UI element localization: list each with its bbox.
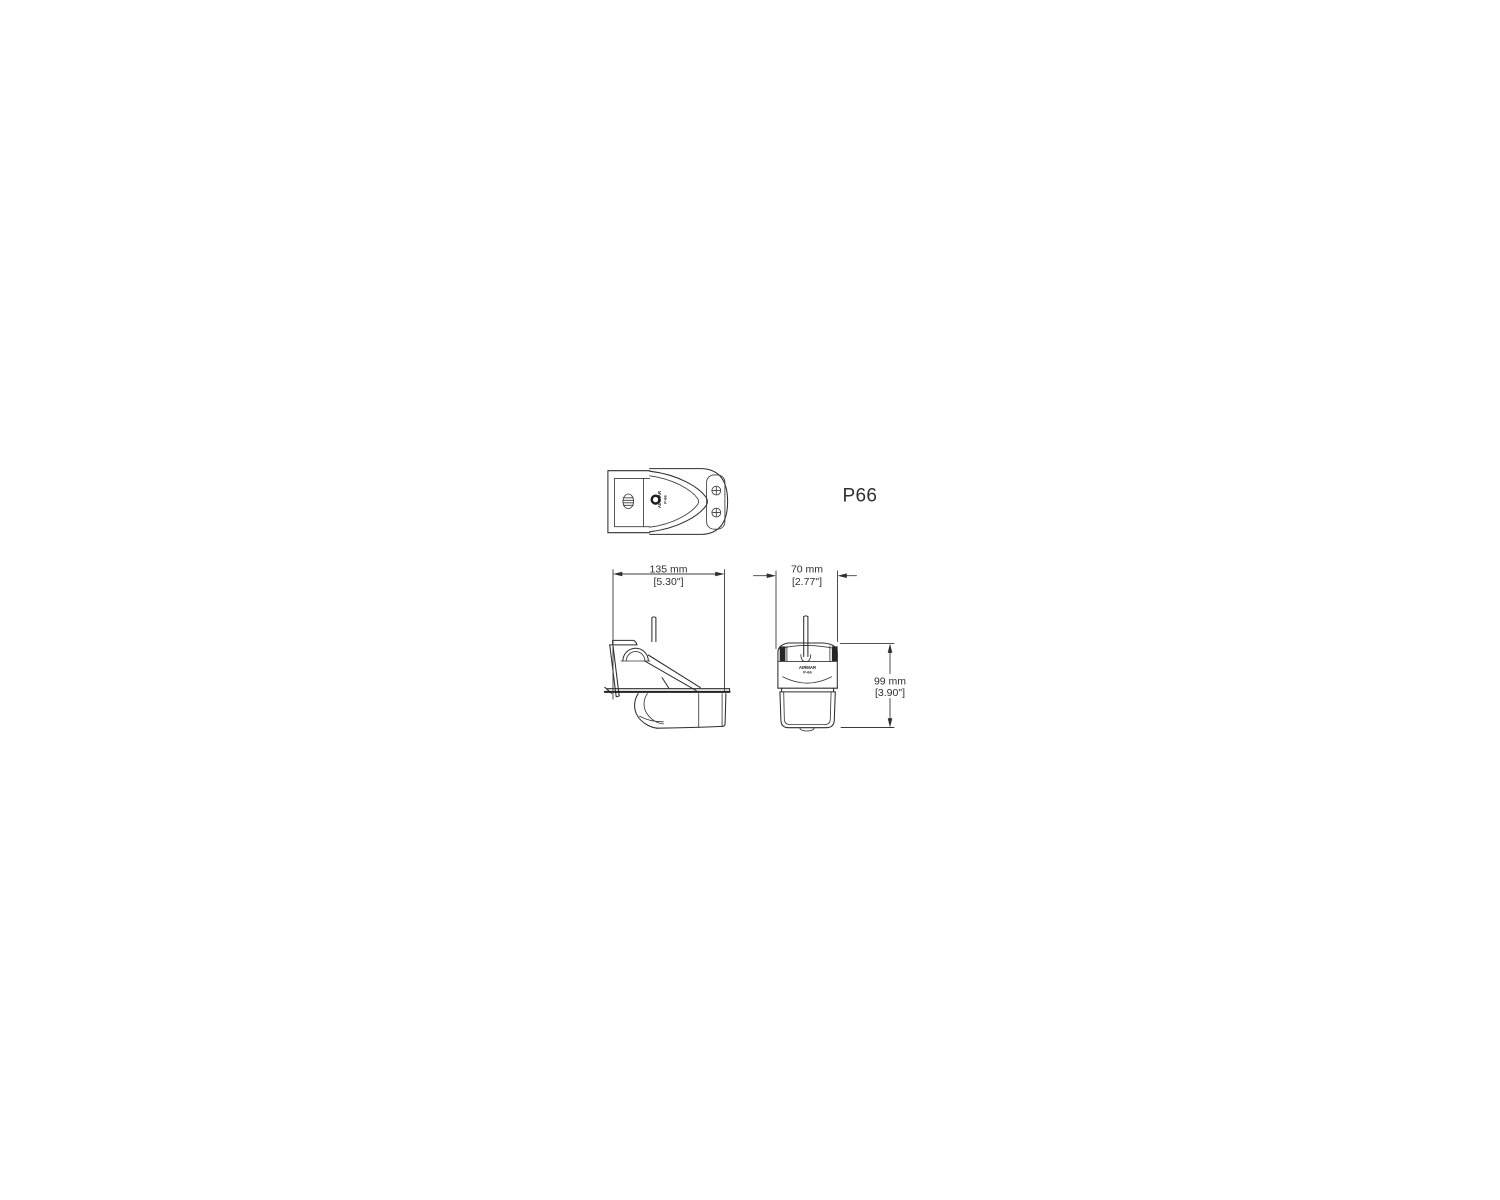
- drawing-page: AIRMAR P-66: [0, 0, 1500, 1200]
- front-view: AIRMAR P-66: [778, 616, 838, 731]
- arrow-down-icon: [888, 718, 893, 727]
- mounting-plate: [605, 687, 730, 693]
- model-label: P-66: [803, 669, 812, 674]
- arrow-left-icon: [613, 572, 622, 577]
- phillips-screw-icon: [712, 486, 721, 495]
- front-lower-housing: [780, 692, 835, 728]
- dim-height-imperial: [3.90"]: [875, 687, 905, 699]
- extension-lines: [613, 570, 725, 699]
- ratchet-block-icon: [832, 646, 838, 661]
- arrow-up-icon: [888, 644, 893, 653]
- top-view: AIRMAR P-66: [608, 469, 728, 535]
- dim-depth-imperial: [2.77"]: [792, 576, 822, 588]
- dim-width-imperial: [5.30"]: [654, 576, 684, 588]
- part-number-label: P66: [843, 486, 878, 507]
- ratchet-knob-icon: [623, 494, 634, 509]
- dimension-width: 135 mm [5.30"]: [613, 563, 725, 699]
- dimension-depth: 70 mm [2.77"]: [754, 563, 857, 648]
- dim-height-metric: 99 mm: [874, 676, 906, 688]
- brand-label: AIRMAR: [657, 490, 662, 508]
- stem-arm: [645, 655, 701, 691]
- bracket-cap: [609, 640, 637, 645]
- front-lower-inner: [784, 692, 831, 725]
- arrow-left-icon: [838, 573, 847, 578]
- cable-line: [801, 616, 811, 662]
- dimension-height: 99 mm [3.90"]: [841, 644, 907, 728]
- front-joint-lines: [778, 688, 837, 692]
- transducer-hull: [635, 694, 726, 729]
- arrow-right-icon: [767, 573, 776, 578]
- arrow-right-icon: [715, 572, 724, 577]
- side-view: [605, 617, 730, 728]
- model-label: P-66: [663, 495, 668, 504]
- top-view-screw-plate: [707, 475, 725, 529]
- pivot-dome: [621, 648, 650, 661]
- ratchet-block-icon: [780, 646, 786, 661]
- cable-line: [652, 617, 656, 642]
- dim-width-metric: 135 mm: [650, 563, 688, 575]
- front-smile-curve: [783, 677, 832, 683]
- phillips-screw-icon: [712, 508, 721, 517]
- technical-drawing: AIRMAR P-66: [0, 0, 1500, 1200]
- dim-depth-metric: 70 mm: [791, 563, 823, 575]
